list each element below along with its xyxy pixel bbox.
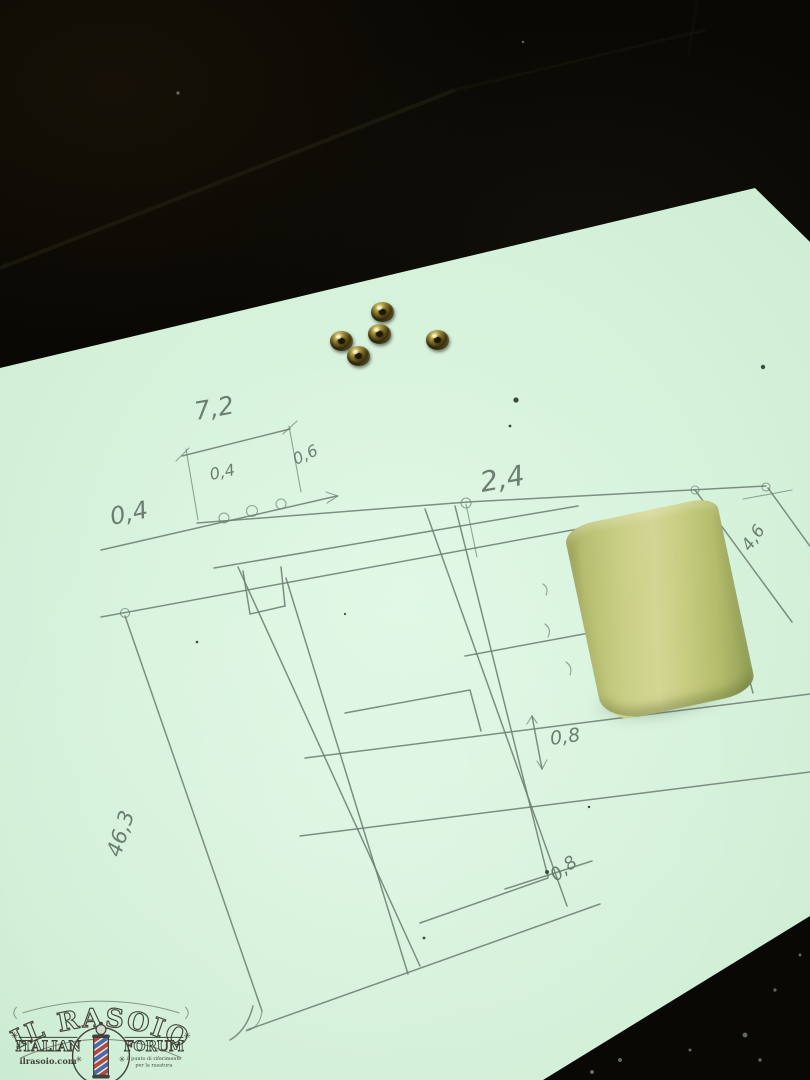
rivet bbox=[371, 302, 394, 322]
rivet-glint bbox=[432, 334, 437, 338]
rivet bbox=[368, 324, 391, 344]
dim-line-46-3 bbox=[125, 616, 262, 1011]
hole-circle bbox=[276, 499, 286, 509]
rivet bbox=[347, 346, 370, 366]
bottom-edge bbox=[247, 904, 600, 1030]
logo-tagline-line2: per la rasatura bbox=[135, 1062, 172, 1068]
profile-side bbox=[425, 509, 567, 906]
photo-scene: { "scene": { "table_color": "#0a0906", "… bbox=[0, 0, 810, 1080]
profile-side bbox=[238, 567, 420, 966]
profile-side bbox=[286, 578, 408, 974]
dimension-label-2-4: 2,4 bbox=[477, 459, 527, 499]
logo-word-italian: ITALIAN bbox=[15, 1039, 81, 1055]
dim-line-4-6 bbox=[768, 488, 810, 549]
rivet-glint bbox=[353, 350, 358, 354]
dimension-label-46-3: 46,3 bbox=[102, 808, 139, 860]
rivet-hole bbox=[376, 331, 383, 337]
dimension-label-0-8-lower: 0,8 bbox=[546, 852, 581, 886]
dimension-label-0-4-small: 0,4 bbox=[208, 460, 237, 484]
rivet-hole bbox=[379, 309, 386, 315]
profile-side bbox=[455, 506, 548, 877]
rivet-hole bbox=[338, 338, 345, 344]
logo-url: ilrasoio.com bbox=[19, 1056, 76, 1066]
ornament-star-icon: ✳ bbox=[119, 1055, 126, 1064]
profile-edge bbox=[300, 772, 810, 836]
rivet-glint bbox=[374, 328, 379, 332]
ornament-star-icon: ✳ bbox=[76, 1055, 83, 1064]
dimension-label-0-6: 0,6 bbox=[290, 441, 321, 469]
logo-tagline-line1: il punto di riferimento bbox=[126, 1056, 181, 1062]
dim-line-7-2 bbox=[182, 429, 290, 456]
rivet-hole bbox=[355, 353, 362, 359]
rivet-hole bbox=[434, 337, 441, 343]
dimension-label-0-4-large: 0,4 bbox=[107, 496, 150, 531]
dimension-label-4-6: 4,6 bbox=[738, 521, 770, 555]
rivet-glint bbox=[377, 306, 382, 310]
watermark-logo: IL RASOIO ✳ ✳ ITALIAN FORUM ilrasoio.com… bbox=[3, 983, 199, 1080]
dimension-label-7-2: 7,2 bbox=[192, 390, 236, 425]
dimension-label-0-8-upper: 0,8 bbox=[549, 724, 582, 750]
ornament-star-icon: ✳ bbox=[183, 1031, 191, 1041]
logo-word-forum: FORUM bbox=[124, 1039, 184, 1055]
rivet bbox=[426, 330, 449, 350]
rivet-glint bbox=[336, 335, 341, 339]
profile-edge bbox=[101, 529, 578, 617]
profile-edge bbox=[214, 506, 578, 568]
